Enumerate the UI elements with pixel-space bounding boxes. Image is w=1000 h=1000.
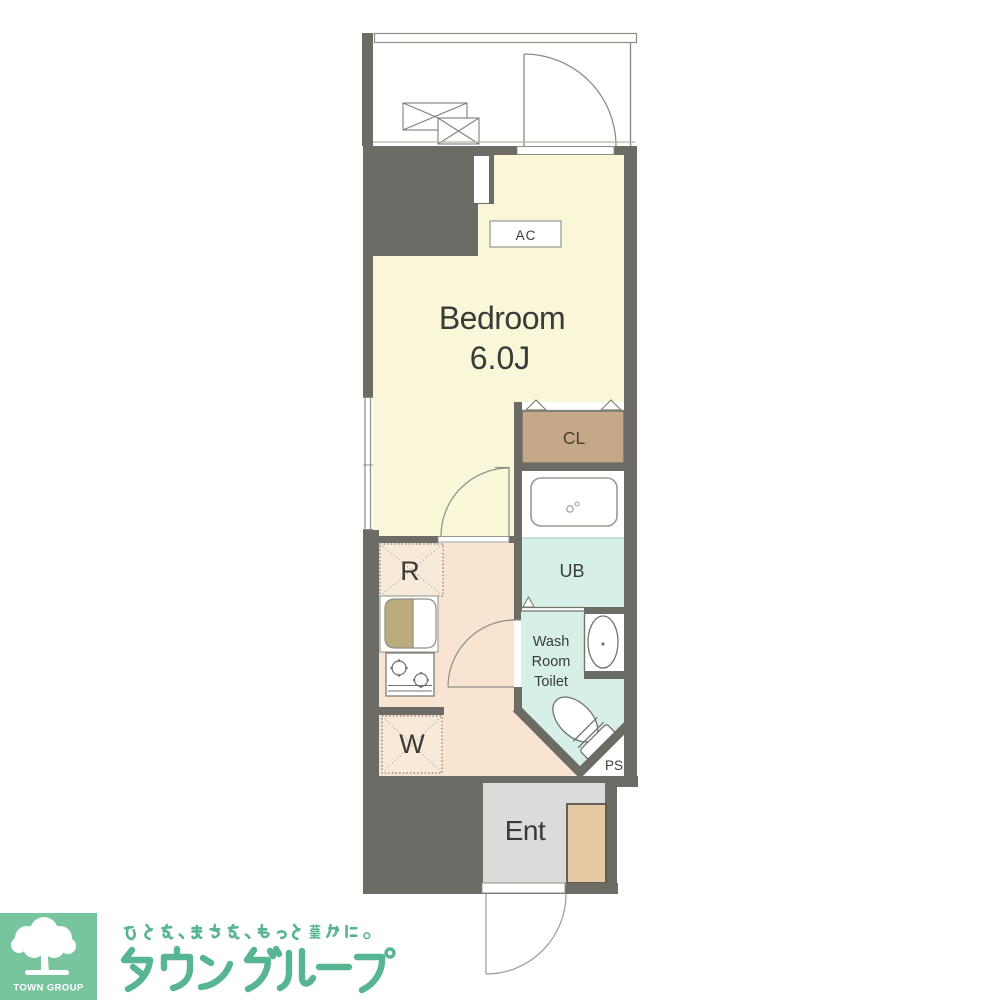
svg-text:W: W bbox=[399, 729, 425, 759]
svg-text:6.0J: 6.0J bbox=[470, 340, 530, 376]
svg-text:Wash: Wash bbox=[533, 634, 570, 650]
svg-text:Ent: Ent bbox=[505, 815, 546, 846]
svg-text:UB: UB bbox=[559, 561, 584, 581]
svg-text:Toilet: Toilet bbox=[534, 674, 568, 690]
svg-text:CL: CL bbox=[563, 428, 586, 448]
svg-text:AC: AC bbox=[516, 228, 537, 243]
svg-text:PS: PS bbox=[605, 758, 623, 773]
svg-text:R: R bbox=[400, 556, 420, 586]
svg-text:Room: Room bbox=[532, 654, 571, 670]
svg-text:TOWN GROUP: TOWN GROUP bbox=[13, 983, 84, 994]
svg-text:Bedroom: Bedroom bbox=[439, 300, 565, 336]
